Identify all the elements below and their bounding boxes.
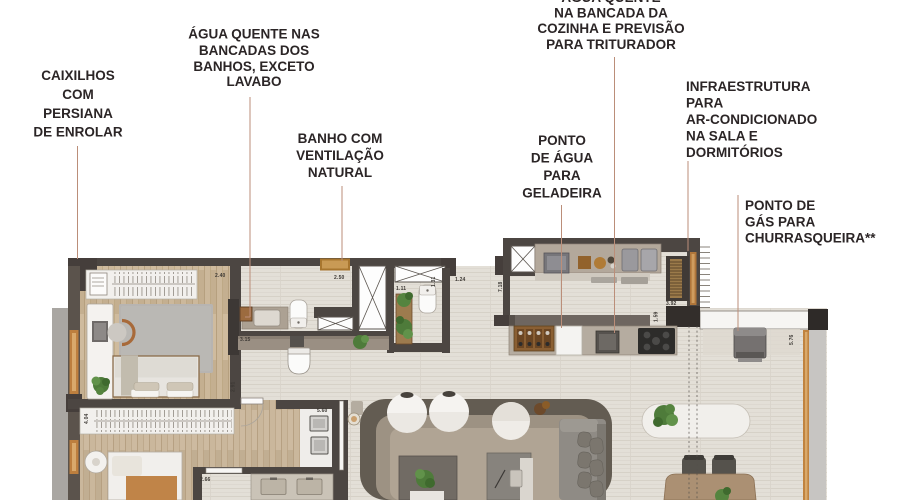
svg-text:GÁS PARA: GÁS PARA: [745, 214, 816, 229]
svg-text:COM: COM: [62, 87, 94, 102]
svg-text:VENTILAÇÃO: VENTILAÇÃO: [296, 148, 384, 163]
svg-text:3.15: 3.15: [240, 337, 251, 343]
svg-text:PARA TRITURADOR: PARA TRITURADOR: [546, 37, 676, 52]
svg-text:1.11: 1.11: [396, 286, 406, 292]
svg-text:NATURAL: NATURAL: [308, 165, 372, 180]
svg-text:2.40: 2.40: [215, 273, 226, 279]
svg-text:INFRAESTRUTURA: INFRAESTRUTURA: [686, 79, 811, 94]
svg-text:NA BANCADA DA: NA BANCADA DA: [554, 6, 668, 21]
svg-text:BANHOS, EXCETO: BANHOS, EXCETO: [193, 59, 314, 74]
svg-text:ÁGUA QUENTE: ÁGUA QUENTE: [561, 0, 660, 5]
svg-text:7.18: 7.18: [498, 281, 504, 292]
svg-text:NA SALA E: NA SALA E: [686, 129, 758, 144]
svg-text:5.76: 5.76: [789, 334, 795, 345]
svg-text:AR-CONDICIONADO: AR-CONDICIONADO: [686, 112, 817, 127]
svg-text:3.92: 3.92: [666, 301, 677, 307]
svg-text:BANHO COM: BANHO COM: [298, 131, 383, 146]
svg-text:CHURRASQUEIRA**: CHURRASQUEIRA**: [745, 231, 876, 246]
svg-text:PONTO: PONTO: [538, 133, 586, 148]
svg-text:PONTO DE: PONTO DE: [745, 198, 815, 213]
svg-text:1.59: 1.59: [654, 311, 660, 322]
svg-text:DE ENROLAR: DE ENROLAR: [33, 125, 123, 140]
svg-text:LAVABO: LAVABO: [227, 74, 282, 89]
svg-text:GELADEIRA: GELADEIRA: [522, 186, 602, 201]
svg-text:4.04: 4.04: [84, 413, 90, 424]
svg-text:DORMITÓRIOS: DORMITÓRIOS: [686, 145, 783, 160]
svg-text:2.50: 2.50: [334, 275, 345, 281]
svg-text:1.24: 1.24: [455, 277, 466, 283]
svg-text:DE ÁGUA: DE ÁGUA: [531, 151, 594, 166]
svg-text:COZINHA E PREVISÃO: COZINHA E PREVISÃO: [537, 21, 684, 36]
svg-text:2.66: 2.66: [200, 477, 211, 483]
svg-text:PARA: PARA: [686, 96, 724, 111]
svg-text:CAIXILHOS: CAIXILHOS: [41, 68, 115, 83]
svg-text:ÁGUA QUENTE NAS: ÁGUA QUENTE NAS: [188, 27, 320, 42]
svg-text:BANCADAS DOS: BANCADAS DOS: [199, 43, 309, 58]
svg-text:1.31: 1.31: [431, 276, 437, 287]
svg-text:2.91: 2.91: [231, 381, 237, 392]
svg-text:PARA: PARA: [543, 168, 581, 183]
svg-text:PERSIANA: PERSIANA: [43, 106, 113, 121]
svg-text:5.60: 5.60: [317, 408, 328, 414]
